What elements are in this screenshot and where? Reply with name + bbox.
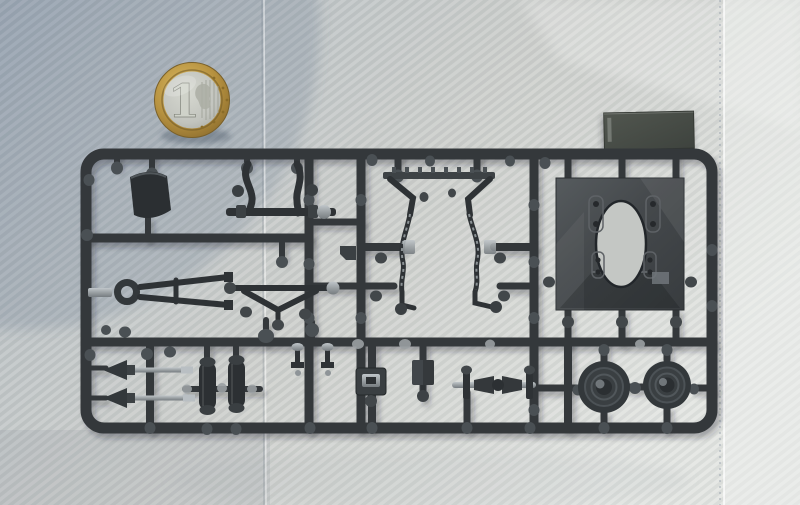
v-brace-cap-right-silver [327, 282, 340, 295]
part-floor-panel [543, 178, 697, 328]
cylinder1-cap-top [200, 357, 216, 367]
photo-canvas: 1 [0, 0, 800, 505]
bolt2-head [322, 343, 334, 351]
dart1-shaft [135, 368, 181, 373]
chain-end-disc-left [395, 303, 407, 315]
disc1-glint [596, 380, 605, 389]
plate-slot [607, 118, 612, 142]
part-wheel-disc-left [578, 361, 630, 413]
axle-collar-right [308, 205, 318, 218]
panel-gate-tab1 [562, 316, 574, 328]
dart2-tip [183, 395, 195, 402]
chain-side-tab4 [498, 291, 510, 302]
a-arm-end-lower [224, 300, 233, 310]
bolt2-foot [321, 362, 334, 368]
cylinder2-cap-bottom [229, 403, 245, 413]
cylinder2-body [228, 360, 245, 408]
v-brace-drop-nub [272, 320, 284, 331]
disc2-glint [659, 378, 667, 386]
buckle-slot [366, 377, 376, 384]
chain-side-tab1 [375, 253, 387, 264]
part-wheel-disc-right [643, 361, 691, 409]
wishbone-tab-right [306, 184, 318, 196]
v-brace-tab1 [240, 307, 252, 318]
funnel-tab1 [420, 192, 429, 202]
bolt1-tip [295, 370, 301, 376]
butterfly-post-right [526, 371, 533, 399]
bolt2-tip [325, 370, 331, 376]
panel-gate-tab3 [670, 316, 682, 328]
wishbone-arm-right [297, 164, 300, 213]
cylinder1-cap-bottom [200, 405, 216, 415]
block-ball [417, 390, 429, 402]
butterfly-cap-right [524, 366, 535, 375]
bolt1-foot [291, 362, 304, 368]
a-arm-end-upper [224, 272, 233, 282]
cylinder1-body [199, 362, 216, 410]
buckle-bottom-nub [365, 395, 377, 407]
block-shade [423, 360, 434, 385]
panel-side-nub-left [543, 277, 555, 288]
panel-gate-tab2 [616, 316, 628, 328]
butterfly-post-left [463, 371, 470, 399]
dart1-tip [181, 367, 193, 374]
chain-buckle-right [484, 240, 496, 254]
wishbone-tab-left [232, 185, 244, 197]
dart1-collar [127, 365, 135, 375]
funnel-bar [383, 172, 495, 179]
bolt1-head [292, 343, 304, 351]
panel-notch [652, 272, 669, 284]
a-arm-silver-mount [88, 288, 112, 297]
dart2-collar [127, 393, 135, 403]
v-brace-tab2 [299, 309, 311, 320]
dart2-shaft [135, 396, 183, 401]
fabric-bright-right-panel [724, 0, 800, 505]
butterfly-cap-left [461, 366, 472, 375]
seat-body [130, 172, 171, 218]
scene: 1 [0, 0, 800, 505]
v-brace-cap-left [224, 282, 236, 294]
axle-collar-left [236, 205, 246, 218]
panel-side-nub-right [685, 277, 697, 288]
chain-buckle-left [403, 240, 415, 254]
axle-silver-disc [317, 205, 331, 219]
chain-side-tab2 [494, 253, 506, 264]
plate-body [604, 111, 695, 150]
chain-side-tab3 [370, 291, 382, 302]
loose-dark-plate [601, 111, 695, 153]
part-seat-shell [130, 172, 171, 218]
butterfly-hub [492, 379, 504, 391]
funnel-tab2 [448, 189, 456, 198]
chain-end-disc-right [490, 301, 502, 313]
cylinder2-cap-top [229, 355, 245, 365]
